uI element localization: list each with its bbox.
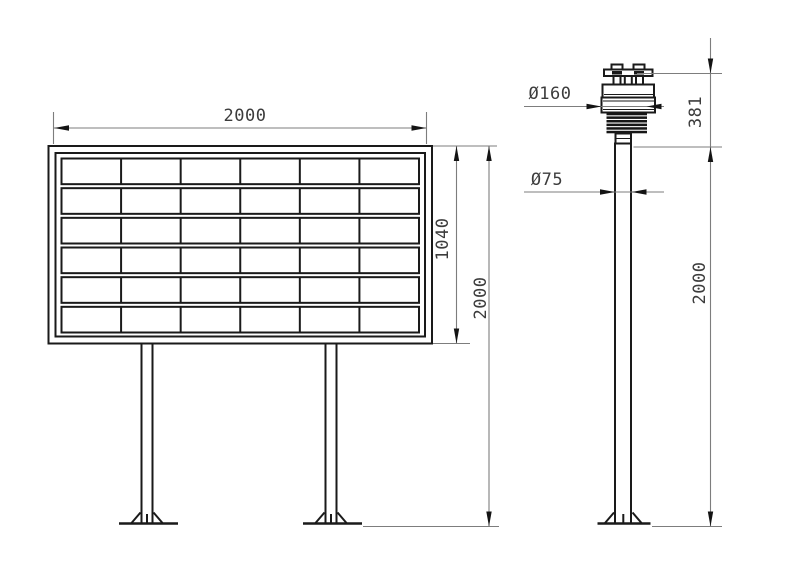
louver-fin bbox=[607, 124, 648, 127]
base-plate-right bbox=[303, 513, 362, 524]
support-leg-left bbox=[142, 344, 153, 524]
pole-diameter-label: Ø75 bbox=[531, 170, 563, 190]
sensor-dimensions: Ø160 Ø75 381 2000 bbox=[524, 38, 722, 527]
arrow-up-icon bbox=[708, 147, 713, 162]
arrow-left-icon bbox=[54, 125, 69, 130]
mounting-pole bbox=[615, 144, 631, 524]
arrow-down-icon bbox=[454, 329, 459, 344]
support-leg-right bbox=[326, 344, 337, 524]
sensor-body-upper bbox=[603, 85, 655, 98]
dim-panel-height: 1040 bbox=[433, 146, 459, 344]
louver-fin bbox=[607, 127, 648, 130]
dim-pole-height: 2000 bbox=[690, 262, 713, 527]
board-width-label: 2000 bbox=[224, 106, 267, 126]
technical-drawing-canvas: 2000 1040 2000 bbox=[0, 0, 800, 563]
display-board-assembly bbox=[49, 146, 433, 524]
board-total-height-label: 2000 bbox=[471, 277, 491, 320]
gusset-left bbox=[132, 513, 141, 524]
arrow-right-icon bbox=[600, 189, 615, 194]
panel-height-label: 1040 bbox=[433, 218, 453, 261]
arrow-left-icon bbox=[632, 189, 647, 194]
sensor-transducer-posts bbox=[614, 76, 644, 85]
dim-board-total-height: 2000 bbox=[471, 146, 492, 527]
arrow-down-icon bbox=[708, 59, 713, 74]
sensor-louvers bbox=[607, 113, 648, 134]
arrow-up-icon bbox=[454, 146, 459, 161]
sensor-height-label: 381 bbox=[686, 96, 706, 128]
weather-sensor-assembly bbox=[598, 65, 656, 524]
gusset-right bbox=[338, 513, 347, 524]
sensor-cap-insert-left bbox=[612, 71, 622, 75]
panel-grid bbox=[62, 159, 420, 333]
sensor-body-band bbox=[602, 98, 656, 113]
base-plate-left bbox=[119, 513, 178, 524]
sensor-neck bbox=[616, 134, 632, 144]
louver-fin bbox=[607, 120, 648, 123]
louver-fin bbox=[607, 116, 648, 119]
pole-height-label: 2000 bbox=[690, 262, 710, 305]
louver-fin bbox=[607, 113, 648, 116]
gusset-left bbox=[605, 513, 614, 524]
gusset-right bbox=[154, 513, 163, 524]
sensor-diameter-label: Ø160 bbox=[529, 84, 572, 104]
arrow-down-icon bbox=[486, 512, 491, 527]
dim-pole-diameter: Ø75 bbox=[524, 170, 664, 195]
base-plate-pole bbox=[598, 513, 651, 524]
arrow-up-icon bbox=[486, 146, 491, 161]
technical-drawing: 2000 1040 2000 bbox=[0, 0, 800, 563]
gusset-left bbox=[316, 513, 325, 524]
arrow-right-icon bbox=[412, 125, 427, 130]
arrow-right-icon bbox=[587, 104, 602, 109]
dim-board-width: 2000 bbox=[54, 106, 427, 144]
arrow-down-icon bbox=[708, 512, 713, 527]
gusset-right bbox=[633, 513, 642, 524]
